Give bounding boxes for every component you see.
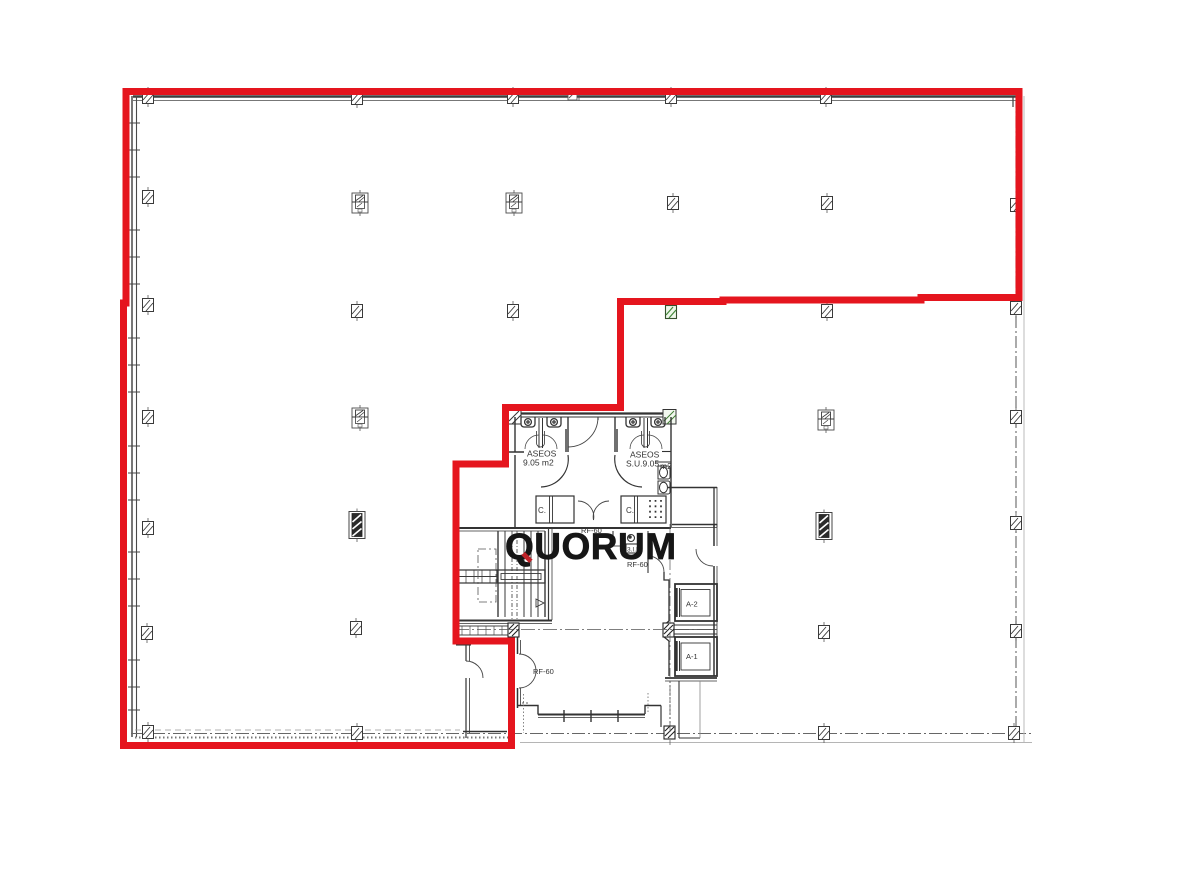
svg-text:S.U.9.05: S.U.9.05	[626, 459, 659, 469]
svg-text:RF-60: RF-60	[533, 667, 554, 676]
svg-text:C.: C.	[538, 506, 546, 515]
svg-text:C.: C.	[626, 506, 634, 515]
svg-text:9.05 m2: 9.05 m2	[523, 458, 554, 468]
svg-text:A-1: A-1	[686, 652, 698, 661]
svg-text:A-2: A-2	[686, 600, 698, 609]
